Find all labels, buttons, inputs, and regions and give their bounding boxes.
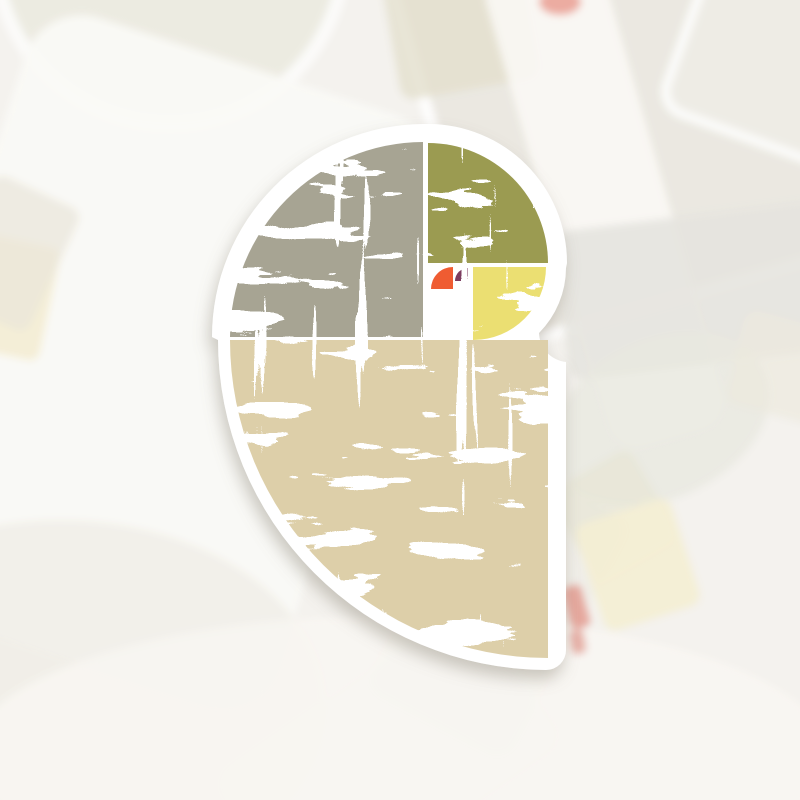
sticker-scene [0, 0, 800, 800]
scene-canvas [0, 0, 800, 800]
